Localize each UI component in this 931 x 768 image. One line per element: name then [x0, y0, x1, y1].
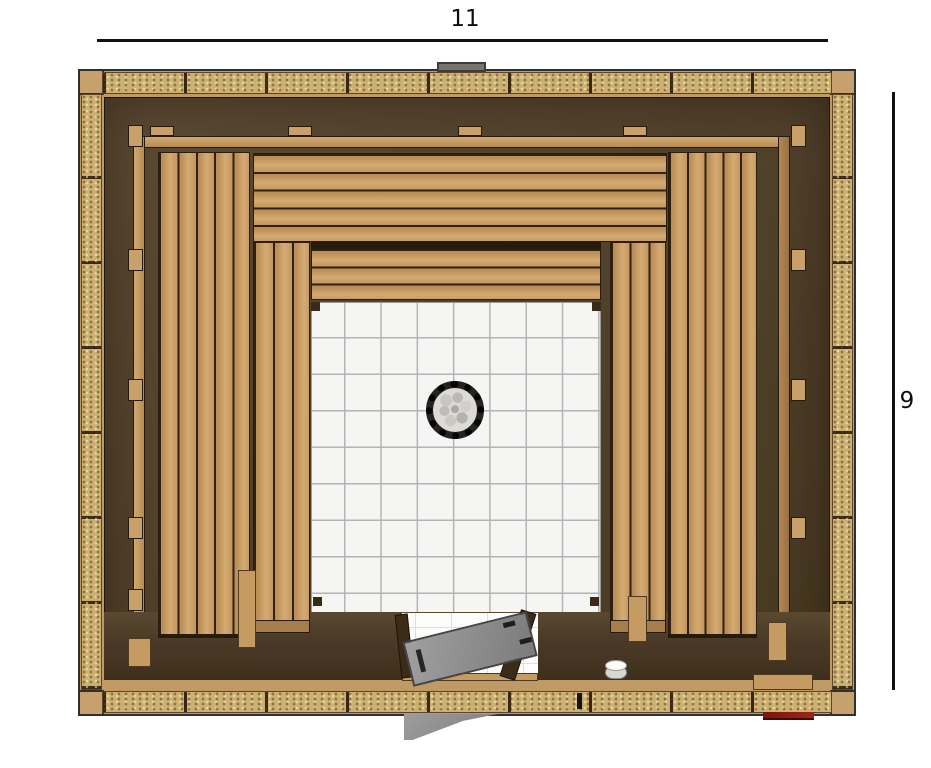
door-hinge-top — [503, 620, 516, 628]
bench-top-upper — [253, 153, 667, 242]
corner-joint-bottom-right — [830, 690, 856, 716]
nailer-block-right-1 — [791, 125, 806, 147]
tile-floor — [311, 302, 601, 613]
nailer-block-left-3 — [128, 379, 143, 401]
bench-left-upper — [158, 152, 250, 636]
bench-right-upper-end-shadow — [668, 634, 757, 638]
nailer-block-right-4 — [791, 517, 806, 539]
nailer-block-left-1 — [128, 125, 143, 147]
wall-trim-bottom-left — [128, 638, 151, 667]
insulation-band-top — [102, 72, 832, 94]
bench-right-upper — [668, 152, 757, 636]
door-hinge-bottom — [519, 637, 532, 645]
wall-trim-bottom-right-vertical — [768, 622, 787, 661]
nailer-block-top-3 — [458, 126, 482, 136]
wall-gap-mark — [577, 693, 582, 709]
sauna-plan-drawing: 11 9 — [0, 0, 931, 768]
insulation-band-bottom — [102, 691, 832, 713]
insulation-band-right — [832, 94, 853, 690]
bench-leg-mark-top-right — [592, 302, 601, 311]
nailer-block-left-2 — [128, 249, 143, 271]
corner-joint-bottom-left — [78, 690, 104, 716]
bench-left-leg-board — [238, 570, 256, 648]
door-swing-outside — [404, 714, 500, 740]
bench-left-upper-end-shadow — [158, 634, 250, 638]
width-dimension-label: 11 — [385, 8, 545, 31]
bench-right-lower — [610, 242, 666, 621]
bench-leg-mark-top-left — [311, 302, 320, 311]
nailer-block-left-5 — [128, 589, 143, 611]
insulation-band-left — [81, 94, 102, 690]
width-dimension-line — [97, 39, 828, 42]
nailer-block-top-1 — [150, 126, 174, 136]
bench-left-lower-front — [253, 620, 310, 633]
corner-joint-top-right — [830, 69, 856, 95]
wall-rail-right — [778, 136, 790, 645]
bench-right-leg-board — [628, 596, 647, 642]
nailer-block-right-2 — [791, 249, 806, 271]
accent-red-strip — [763, 712, 814, 720]
wall-trim-bottom-right-horizontal — [753, 674, 813, 690]
nailer-block-top-2 — [288, 126, 312, 136]
nailer-block-right-3 — [791, 379, 806, 401]
floor-puck-top — [605, 660, 627, 671]
wall-rail-top — [133, 136, 790, 148]
roof-vent-tab — [437, 62, 486, 72]
door-handle — [416, 649, 426, 673]
nailer-block-top-4 — [623, 126, 647, 136]
sauna-body — [78, 69, 856, 716]
corner-joint-top-left — [78, 69, 104, 95]
bench-left-lower — [253, 242, 310, 621]
height-dimension-label: 9 — [894, 390, 920, 413]
heater-stones — [426, 381, 484, 439]
bench-leg-mark-bottom-right — [590, 597, 599, 606]
bench-top-lower — [311, 248, 601, 300]
nailer-block-left-4 — [128, 517, 143, 539]
bench-leg-mark-bottom-left — [313, 597, 322, 606]
